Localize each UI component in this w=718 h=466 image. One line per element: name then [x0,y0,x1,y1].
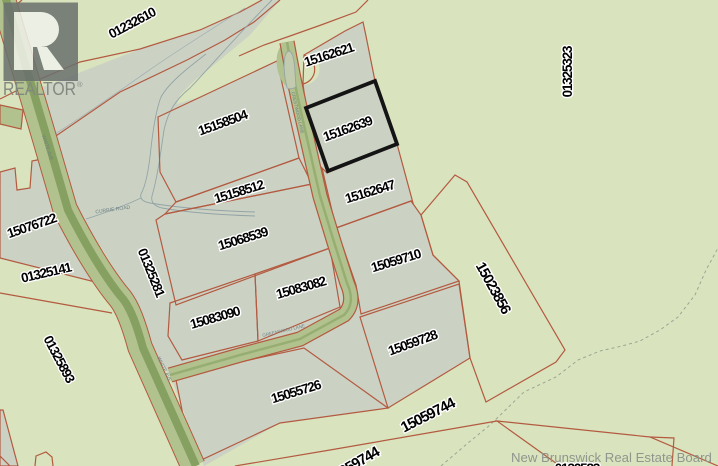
svg-text:REALTOR: REALTOR [3,79,76,99]
svg-text:®: ® [77,80,83,89]
svg-text:New Brunswick Real Estate Boar: New Brunswick Real Estate Board [511,450,712,465]
svg-text:01325323: 01325323 [560,46,575,97]
